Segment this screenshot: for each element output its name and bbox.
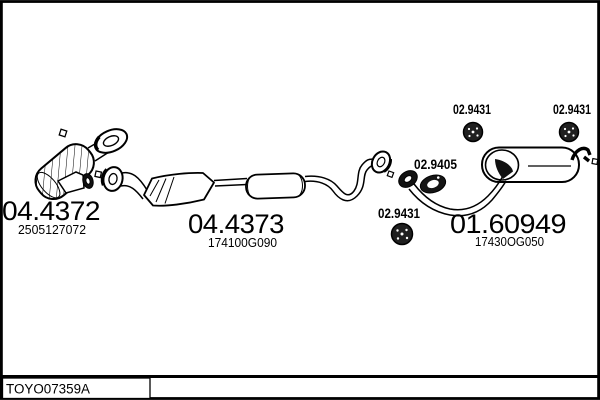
bolt-icon [95,171,102,178]
gasket-drawing [418,172,448,196]
bolt-icon [592,159,598,165]
oe-number-front-catalyst: 2505127072 [18,222,86,237]
oe-number-middle-section: 174100G090 [208,235,277,250]
mount-ring-top-left-drawing [464,123,483,142]
bolt-icon [387,171,393,177]
mount-ring-bottom-drawing [392,224,413,245]
part-number-mount-ring-top-right: 02.9431 [553,101,591,117]
middle-resonator [246,173,306,199]
part-number-mount-ring-top-left: 02.9431 [453,101,491,117]
middle-inlet-flange [100,165,124,193]
front-inlet-flange [91,124,131,157]
mount-ring-top-right-drawing [560,123,579,142]
exhaust-parts-diagram: 04.4372 2505127072 04.4373 174100G090 01… [0,0,600,400]
middle-section-drawing [100,148,394,205]
front-catalyst-drawing [29,124,131,205]
tailpipe [572,148,590,161]
part-number-mount-ring-bottom: 02.9431 [378,205,420,221]
oe-number-rear-muffler: 17430OG050 [475,234,544,249]
bolt-icon [59,129,67,137]
middle-catalyst-body [144,173,214,206]
drawing-code: TOYO07359A [6,382,90,397]
part-number-gasket: 02.9405 [414,156,457,172]
diagram-canvas: 04.4372 2505127072 04.4373 174100G090 01… [0,0,600,400]
